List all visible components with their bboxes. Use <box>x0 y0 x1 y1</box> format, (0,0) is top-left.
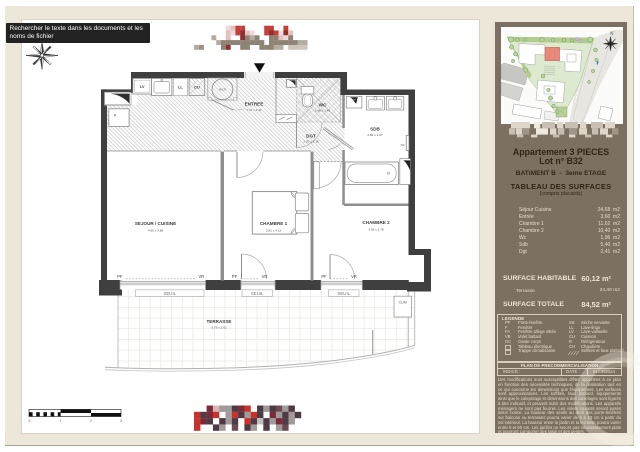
svg-text:VR: VR <box>262 274 268 279</box>
svg-text:1.48 x 1.42: 1.48 x 1.42 <box>315 109 331 113</box>
svg-text:CHAMBRE 1: CHAMBRE 1 <box>260 221 288 226</box>
svg-text:WC: WC <box>319 103 327 108</box>
svg-text:CHAMBRE 2: CHAMBRE 2 <box>362 220 390 225</box>
svg-text:PF: PF <box>117 274 123 279</box>
svg-text:7.47 x 2.41: 7.47 x 2.41 <box>246 108 262 112</box>
svg-text:3: 3 <box>120 419 122 423</box>
svg-text:1: 1 <box>60 419 62 423</box>
svg-text:2.82 x 2.07: 2.82 x 2.07 <box>367 133 383 137</box>
svg-text:VR: VR <box>351 274 357 279</box>
svg-text:SDB: SDB <box>370 127 380 132</box>
svg-text:0: 0 <box>29 419 31 423</box>
svg-text:ENTREE: ENTREE <box>245 102 264 107</box>
svg-text:LL: LL <box>178 85 183 90</box>
svg-text:N: N <box>608 32 613 37</box>
svg-text:2: 2 <box>90 419 92 423</box>
svg-text:SEJOUR / CUISINE: SEJOUR / CUISINE <box>135 221 176 226</box>
svg-text:MICR: MICR <box>219 87 226 91</box>
svg-text:9.79 x 2.62: 9.79 x 2.62 <box>211 326 227 330</box>
svg-text:VR: VR <box>198 274 204 279</box>
svg-text:3.08 x 3.78: 3.08 x 3.78 <box>368 228 384 232</box>
svg-text:PF: PF <box>232 274 238 279</box>
svg-text:4.60 x 3.88: 4.60 x 3.88 <box>148 229 164 233</box>
svg-text:SEUIL: SEUIL <box>337 291 350 296</box>
svg-text:CLIM: CLIM <box>399 301 407 305</box>
svg-text:2.92 x 1.18: 2.92 x 1.18 <box>303 140 319 144</box>
svg-text:CU: CU <box>194 85 200 90</box>
svg-text:SEUIL: SEUIL <box>163 291 176 296</box>
svg-text:LV: LV <box>140 84 145 89</box>
svg-text:TERRASSE: TERRASSE <box>206 319 231 324</box>
svg-text:DGT: DGT <box>306 134 316 139</box>
svg-text:2.82 x 4.12: 2.82 x 4.12 <box>266 229 282 233</box>
svg-text:SEUIL: SEUIL <box>251 291 264 296</box>
svg-text:PF: PF <box>321 274 327 279</box>
svg-text:SS: SS <box>400 143 404 147</box>
